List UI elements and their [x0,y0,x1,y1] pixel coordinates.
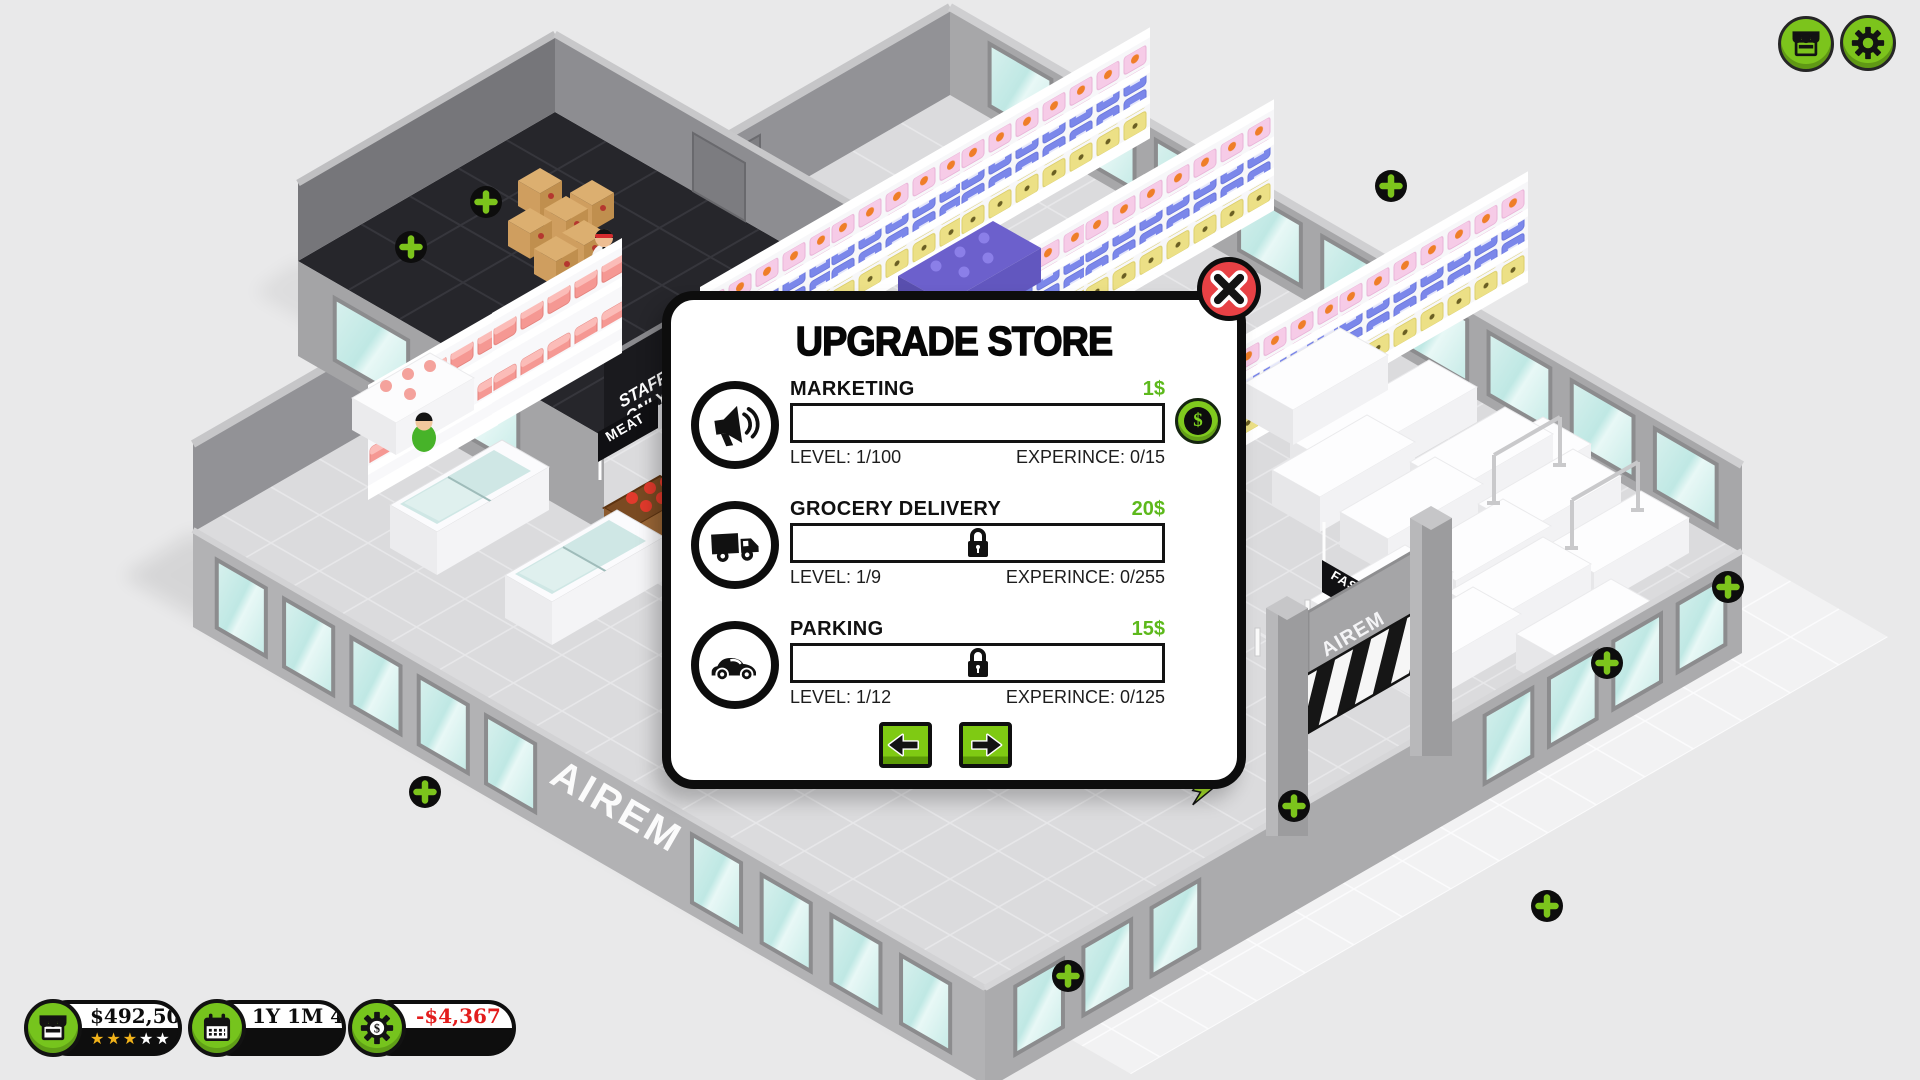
build-spot-plus-icon[interactable] [1712,571,1744,603]
experience-label: EXPERINCE: 0/125 [1006,687,1165,708]
settings-button[interactable] [1840,15,1896,71]
level-label: LEVEL: 1/12 [790,687,891,708]
parking-progress-bar [790,643,1165,683]
experience-label: EXPERINCE: 0/255 [1006,567,1165,588]
build-spot-plus-icon[interactable] [1375,170,1407,202]
build-spot-plus-icon[interactable] [1278,790,1310,822]
build-spot-plus-icon[interactable] [1531,890,1563,922]
money-badge[interactable]: $492,500 ★★★★★ [24,998,194,1060]
close-button[interactable] [1197,257,1261,321]
upgrade-name: PARKING [790,618,884,641]
store-button[interactable] [1778,16,1834,72]
truck-icon [691,501,779,589]
build-spot-plus-icon[interactable] [470,186,502,218]
car-icon [691,621,779,709]
lock-icon [961,646,995,680]
upgrade-name: GROCERY DELIVERY [790,498,1001,521]
upgrade-row-grocery-delivery: GROCERY DELIVERY 20$ LEVEL: 1/9 EXPERINC… [689,498,1241,610]
modal-pagination [671,722,1219,768]
modal-title: UPGRADE STORE [694,318,1215,365]
arrow-right-icon [965,728,1005,762]
upgrade-price: 20$ [1132,498,1165,521]
upgrade-price: 15$ [1132,618,1165,641]
build-spot-plus-icon[interactable] [395,231,427,263]
upgrade-store-modal: UPGRADE STORE MARKETING 1$ LEVEL: 1/100 … [662,291,1246,789]
lock-icon [961,526,995,560]
game-stage: STAFF ONLY [0,0,1920,1080]
gear-dollar-icon: $ [348,999,406,1057]
marketing-progress-bar [790,403,1165,443]
storefront-icon [24,999,82,1057]
arrow-left-icon [885,728,925,762]
experience-label: EXPERINCE: 0/15 [1016,447,1165,468]
megaphone-icon [691,381,779,469]
storefront-icon [1788,26,1824,62]
buy-marketing-button[interactable]: $ [1175,398,1221,444]
gear-icon [1849,24,1887,62]
grocery-delivery-progress-bar [790,523,1165,563]
upgrade-price: 1$ [1143,378,1165,401]
upgrade-row-parking: PARKING 15$ LEVEL: 1/12 EXPERINCE: 0/125 [689,618,1241,730]
time-badge[interactable]: 1Y 1M 4W [188,998,358,1060]
build-spot-plus-icon[interactable] [1591,647,1623,679]
build-spot-plus-icon[interactable] [1052,960,1084,992]
prev-arrow-button[interactable] [879,722,932,768]
level-label: LEVEL: 1/100 [790,447,901,468]
next-arrow-button[interactable] [959,722,1012,768]
build-spot-plus-icon[interactable] [409,776,441,808]
calendar-icon [188,999,246,1057]
svg-text:$: $ [374,1021,380,1035]
dollar-icon: $ [1184,407,1212,435]
close-icon [1208,268,1250,310]
upgrade-name: MARKETING [790,378,915,401]
expenses-badge[interactable]: -$4,367 $ [348,998,528,1060]
level-label: LEVEL: 1/9 [790,567,881,588]
upgrade-row-marketing: MARKETING 1$ LEVEL: 1/100 EXPERINCE: 0/1… [689,378,1241,490]
